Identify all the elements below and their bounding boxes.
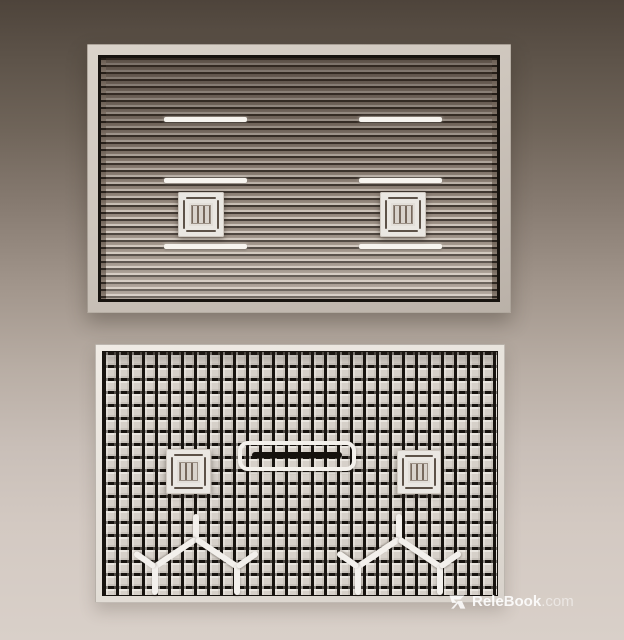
watermark-brand: ReleBook	[472, 593, 541, 610]
linear-light-strip	[164, 178, 247, 183]
vent-grille	[189, 203, 213, 226]
watermark-suffix: .com	[541, 593, 574, 610]
branch-arm	[133, 550, 157, 569]
slatted-ceiling-panel	[87, 44, 511, 313]
branch-arm	[235, 550, 259, 569]
slot-diffuser	[238, 441, 356, 471]
diffuser-slot	[252, 452, 342, 458]
branch-arm	[152, 565, 158, 595]
branch-arm	[437, 565, 443, 595]
vent-slot	[186, 197, 216, 199]
branch-arm	[153, 537, 198, 570]
branch-light-fixture	[334, 514, 464, 596]
slat-edge-trim	[101, 58, 106, 299]
cassette-vent	[178, 192, 224, 237]
branch-arm	[397, 537, 442, 570]
linear-light-strip	[359, 244, 442, 249]
vent-slot	[174, 487, 203, 489]
branch-arm	[438, 550, 462, 569]
vent-grille	[408, 461, 430, 483]
vent-slot	[183, 200, 185, 229]
vent-slot	[174, 454, 203, 456]
vent-slot	[388, 197, 418, 199]
branch-arm	[234, 565, 240, 595]
relebook-logo-icon	[447, 592, 467, 612]
branch-light-fixture	[131, 514, 261, 596]
vent-slot	[388, 230, 418, 232]
render-background: ReleBook.com	[0, 0, 624, 640]
cassette-vent	[166, 449, 211, 494]
vent-grille	[177, 460, 200, 483]
vent-slot	[419, 200, 421, 229]
cassette-vent	[380, 192, 426, 237]
vent-slot	[217, 200, 219, 229]
branch-arm	[356, 537, 401, 570]
linear-light-strip	[164, 244, 247, 249]
branch-arm	[194, 537, 239, 570]
branch-arm	[336, 550, 360, 569]
grid-ceiling-panel	[95, 344, 505, 603]
vent-slot	[405, 455, 433, 457]
linear-light-strip	[164, 117, 247, 122]
vent-slot	[434, 458, 436, 486]
vent-grille	[391, 203, 415, 226]
vent-slot	[186, 230, 216, 232]
vent-slot	[405, 487, 433, 489]
vent-slot	[402, 458, 404, 486]
vent-slot	[385, 200, 387, 229]
cassette-vent	[397, 450, 441, 494]
grid-ceiling-surface	[102, 351, 498, 596]
linear-light-strip	[359, 117, 442, 122]
linear-light-strip	[359, 178, 442, 183]
slat-ceiling-surface	[101, 58, 497, 299]
branch-arm	[396, 514, 402, 540]
watermark: ReleBook.com	[447, 591, 574, 613]
slat-edge-trim	[492, 58, 497, 299]
branch-arm	[193, 514, 199, 540]
branch-arm	[355, 565, 361, 595]
vent-slot	[171, 457, 173, 486]
watermark-text: ReleBook.com	[472, 591, 574, 613]
vent-slot	[204, 457, 206, 486]
